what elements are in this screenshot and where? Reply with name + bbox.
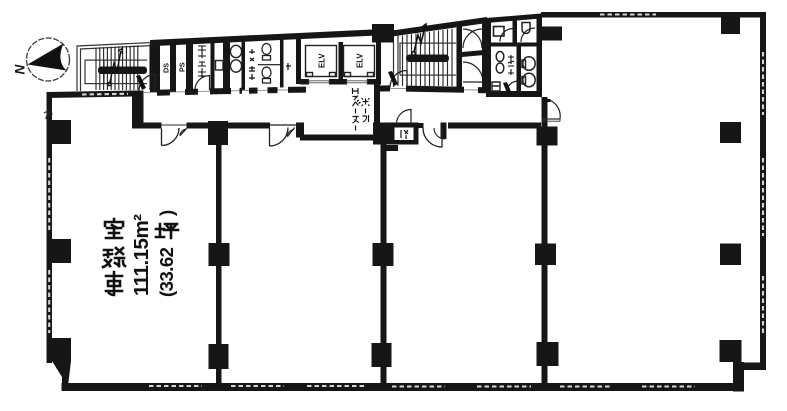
svg-text:ELV: ELV — [318, 53, 327, 68]
svg-text:(33.62: (33.62 — [156, 247, 177, 297]
svg-text:DS: DS — [162, 63, 171, 73]
svg-text:PS: PS — [178, 62, 187, 72]
svg-text:): ) — [156, 210, 177, 216]
svg-text:111.15m²: 111.15m² — [130, 214, 153, 296]
svg-text:ELV: ELV — [356, 53, 365, 68]
svg-text:N: N — [13, 65, 28, 75]
